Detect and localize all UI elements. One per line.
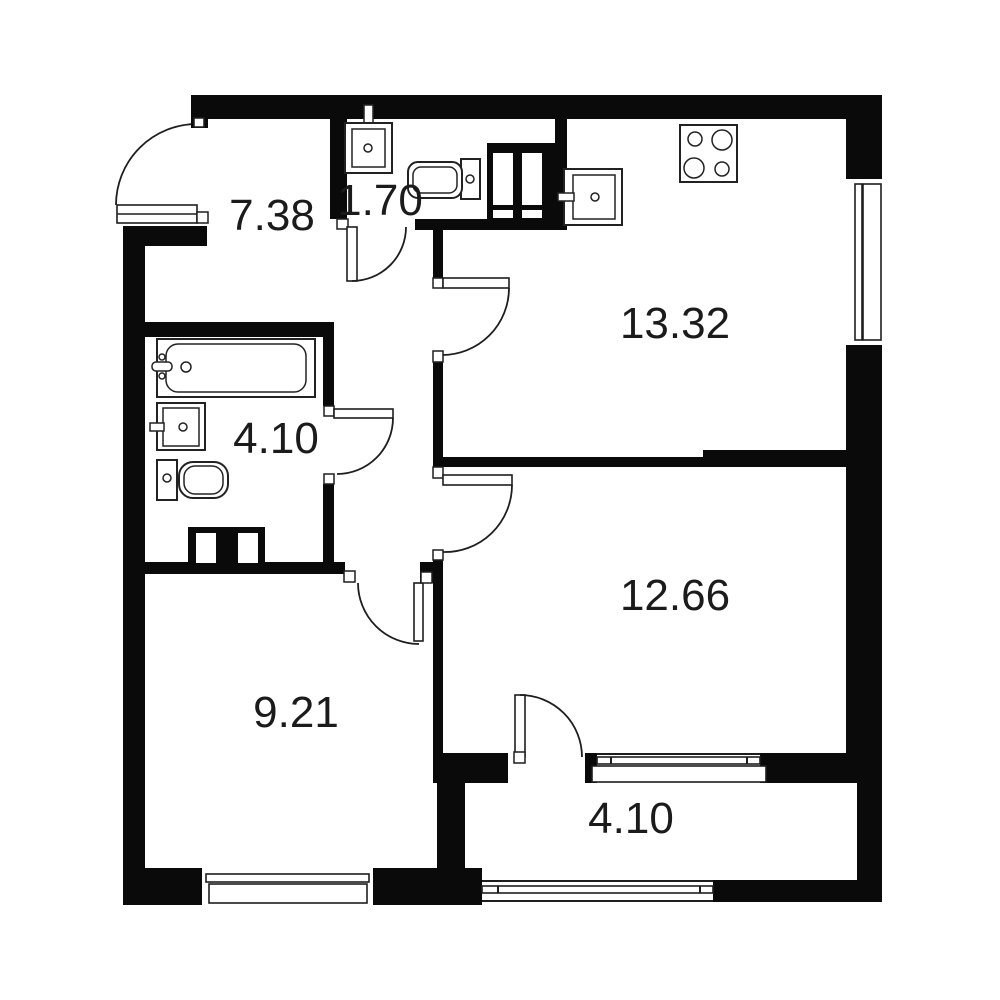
bedroom-window	[202, 868, 373, 905]
wall-bathroom-right-upper	[323, 322, 334, 406]
bedroom-area-label: 9.21	[253, 688, 339, 737]
wall-balcony-bottom-right	[713, 880, 882, 902]
wall-top	[191, 95, 880, 119]
wc-door	[337, 219, 406, 281]
wall-bathroom-top	[145, 322, 333, 337]
wall-balcony-sep-b	[760, 753, 882, 783]
bathroom-door	[324, 406, 393, 484]
room-labels: 7.38 1.70 13.32 4.10 12.66 9.21 4.10	[229, 176, 730, 843]
wall-right-upper	[846, 95, 882, 179]
kitchen-door	[433, 278, 509, 362]
balcony-door	[514, 695, 582, 763]
wall-kitchen-living-thick	[703, 450, 846, 467]
wall-balcony-corner-block	[433, 753, 508, 783]
wall-kitchen-living-thin	[433, 457, 705, 467]
bathroom-area-label: 4.10	[233, 414, 319, 463]
wall-bathroom-bottom	[123, 562, 345, 574]
living-room-door	[433, 467, 512, 560]
balcony-inner-window	[592, 753, 766, 783]
kitchen-area-label: 13.32	[620, 299, 730, 348]
wc-area-label: 1.70	[337, 176, 423, 225]
wall-bedroom-balcony	[437, 783, 465, 868]
wall-entry-step	[123, 226, 207, 246]
living-room-area-label: 12.66	[620, 571, 730, 620]
toilet-icon	[157, 460, 228, 500]
wall-living-left	[433, 560, 443, 753]
kitchen-window	[846, 179, 882, 345]
floor-plan: 7.38 1.70 13.32 4.10 12.66 9.21 4.10	[0, 0, 1000, 1000]
balcony-glazing	[482, 880, 713, 902]
balcony-area-label: 4.10	[588, 794, 674, 843]
wall-right-mid	[846, 345, 882, 783]
wall-hall-kitchen-lower	[433, 362, 443, 458]
wall-bottom-left-b	[373, 868, 482, 905]
duct-icon	[188, 527, 265, 563]
ventilation-shaft-icon	[487, 143, 560, 223]
bedroom-door	[344, 571, 432, 644]
hallway-area-label: 7.38	[229, 191, 315, 240]
kitchen-sink-icon	[558, 169, 622, 225]
bathtub-icon	[152, 339, 315, 397]
wall-bathroom-right-lower	[323, 484, 334, 562]
entry-door	[116, 117, 208, 223]
bathroom-sink-icon	[150, 403, 205, 450]
floor-plan-canvas: 7.38 1.70 13.32 4.10 12.66 9.21 4.10	[0, 0, 1000, 1000]
stove-icon	[680, 125, 737, 182]
